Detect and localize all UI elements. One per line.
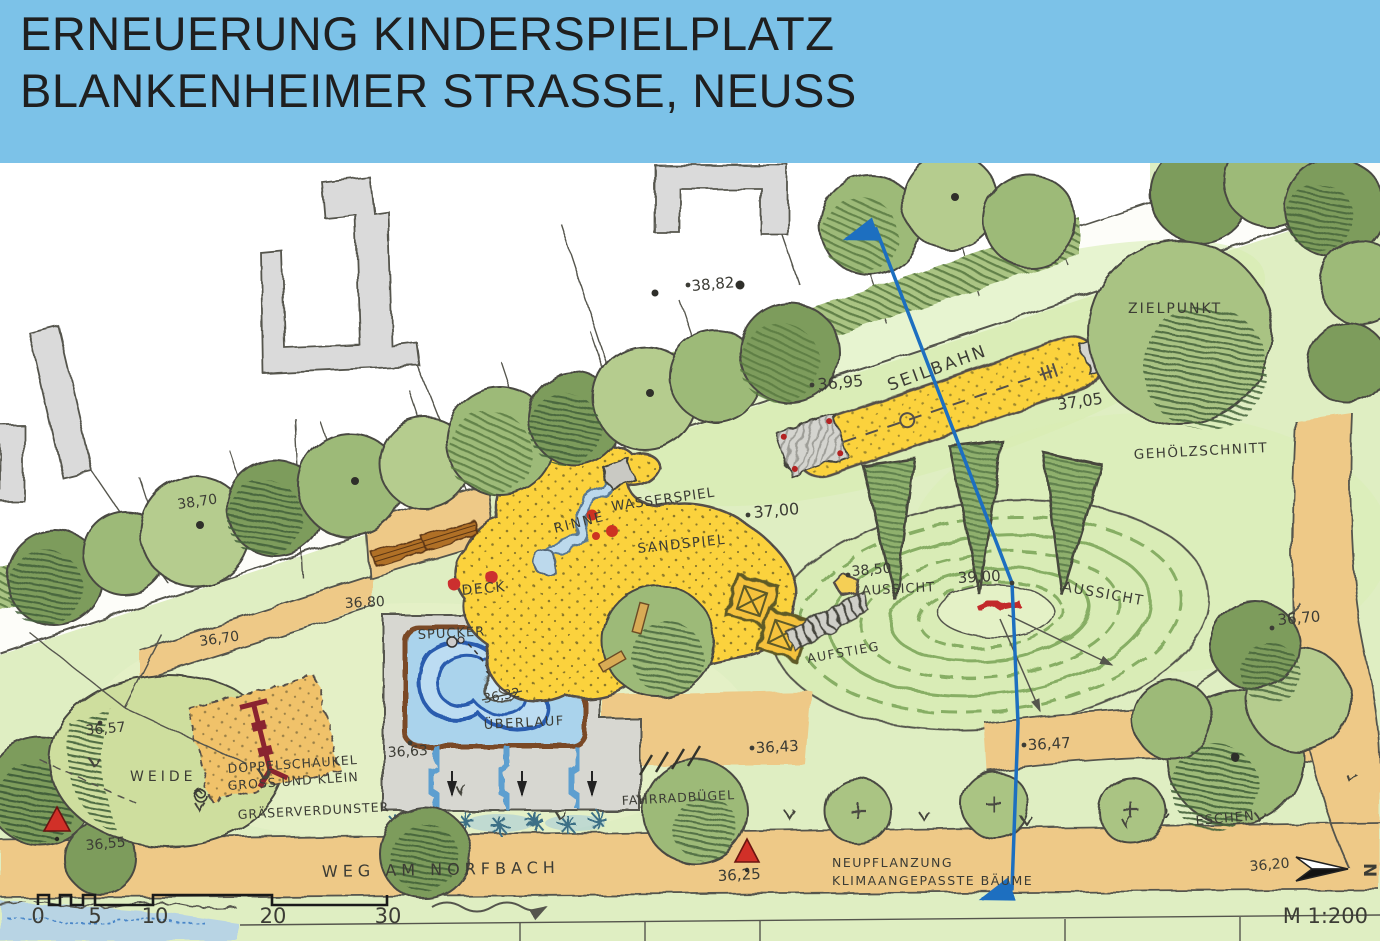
label-elev-39-00: 39,00: [957, 567, 1001, 587]
scale-tick-5: 5: [88, 904, 101, 928]
spielelement-rot: [448, 578, 461, 590]
screenshot-root: ERNEUERUNG KINDERSPIELPLATZ BLANKENHEIME…: [0, 0, 1380, 941]
label-elev-36-47: 36,47: [1027, 734, 1071, 754]
label-elev-37-00: 37,00: [753, 499, 800, 522]
label-elev-36-95: 36,95: [817, 371, 864, 394]
label-neupflanzung-1: NEUPFLANZUNG: [832, 855, 953, 870]
site-plan: 38,82 ZIELPUNKT SEILBAHN 36,95 37,05 GEH…: [0, 163, 1380, 941]
label-zielpunkt: ZIELPUNKT: [1128, 301, 1222, 317]
label-elev-36-43: 36,43: [755, 737, 799, 757]
label-elev-36-70-ost: 36,70: [1277, 607, 1321, 629]
scale-ratio-label: M 1:200: [1283, 904, 1368, 928]
label-elev-38-82: 38,82: [691, 273, 735, 295]
scale-tick-30: 30: [375, 904, 402, 928]
label-weide: WEIDE: [130, 769, 196, 785]
label-elev-36-80: 36,80: [344, 594, 385, 612]
label-neupflanzung-2: KLIMAANGEPASSTE BÄUME: [832, 873, 1033, 888]
page-title-line1: ERNEUERUNG KINDERSPIELPLATZ: [20, 6, 834, 61]
strauch-reihe-sued: [825, 772, 1165, 844]
label-elev-36-25: 36,25: [717, 865, 761, 885]
scale-tick-10: 10: [142, 904, 169, 928]
scale-tick-20: 20: [260, 904, 287, 928]
scale-tick-0: 0: [31, 904, 44, 928]
page-title-line2: BLANKENHEIMER STRASSE, NEUSS: [20, 63, 857, 118]
north-label: N: [1359, 863, 1379, 877]
title-banner: ERNEUERUNG KINDERSPIELPLATZ BLANKENHEIME…: [0, 0, 1380, 163]
baumgruppe-nordost: [1088, 163, 1380, 430]
label-elev-36-63: 36,63: [387, 743, 428, 761]
